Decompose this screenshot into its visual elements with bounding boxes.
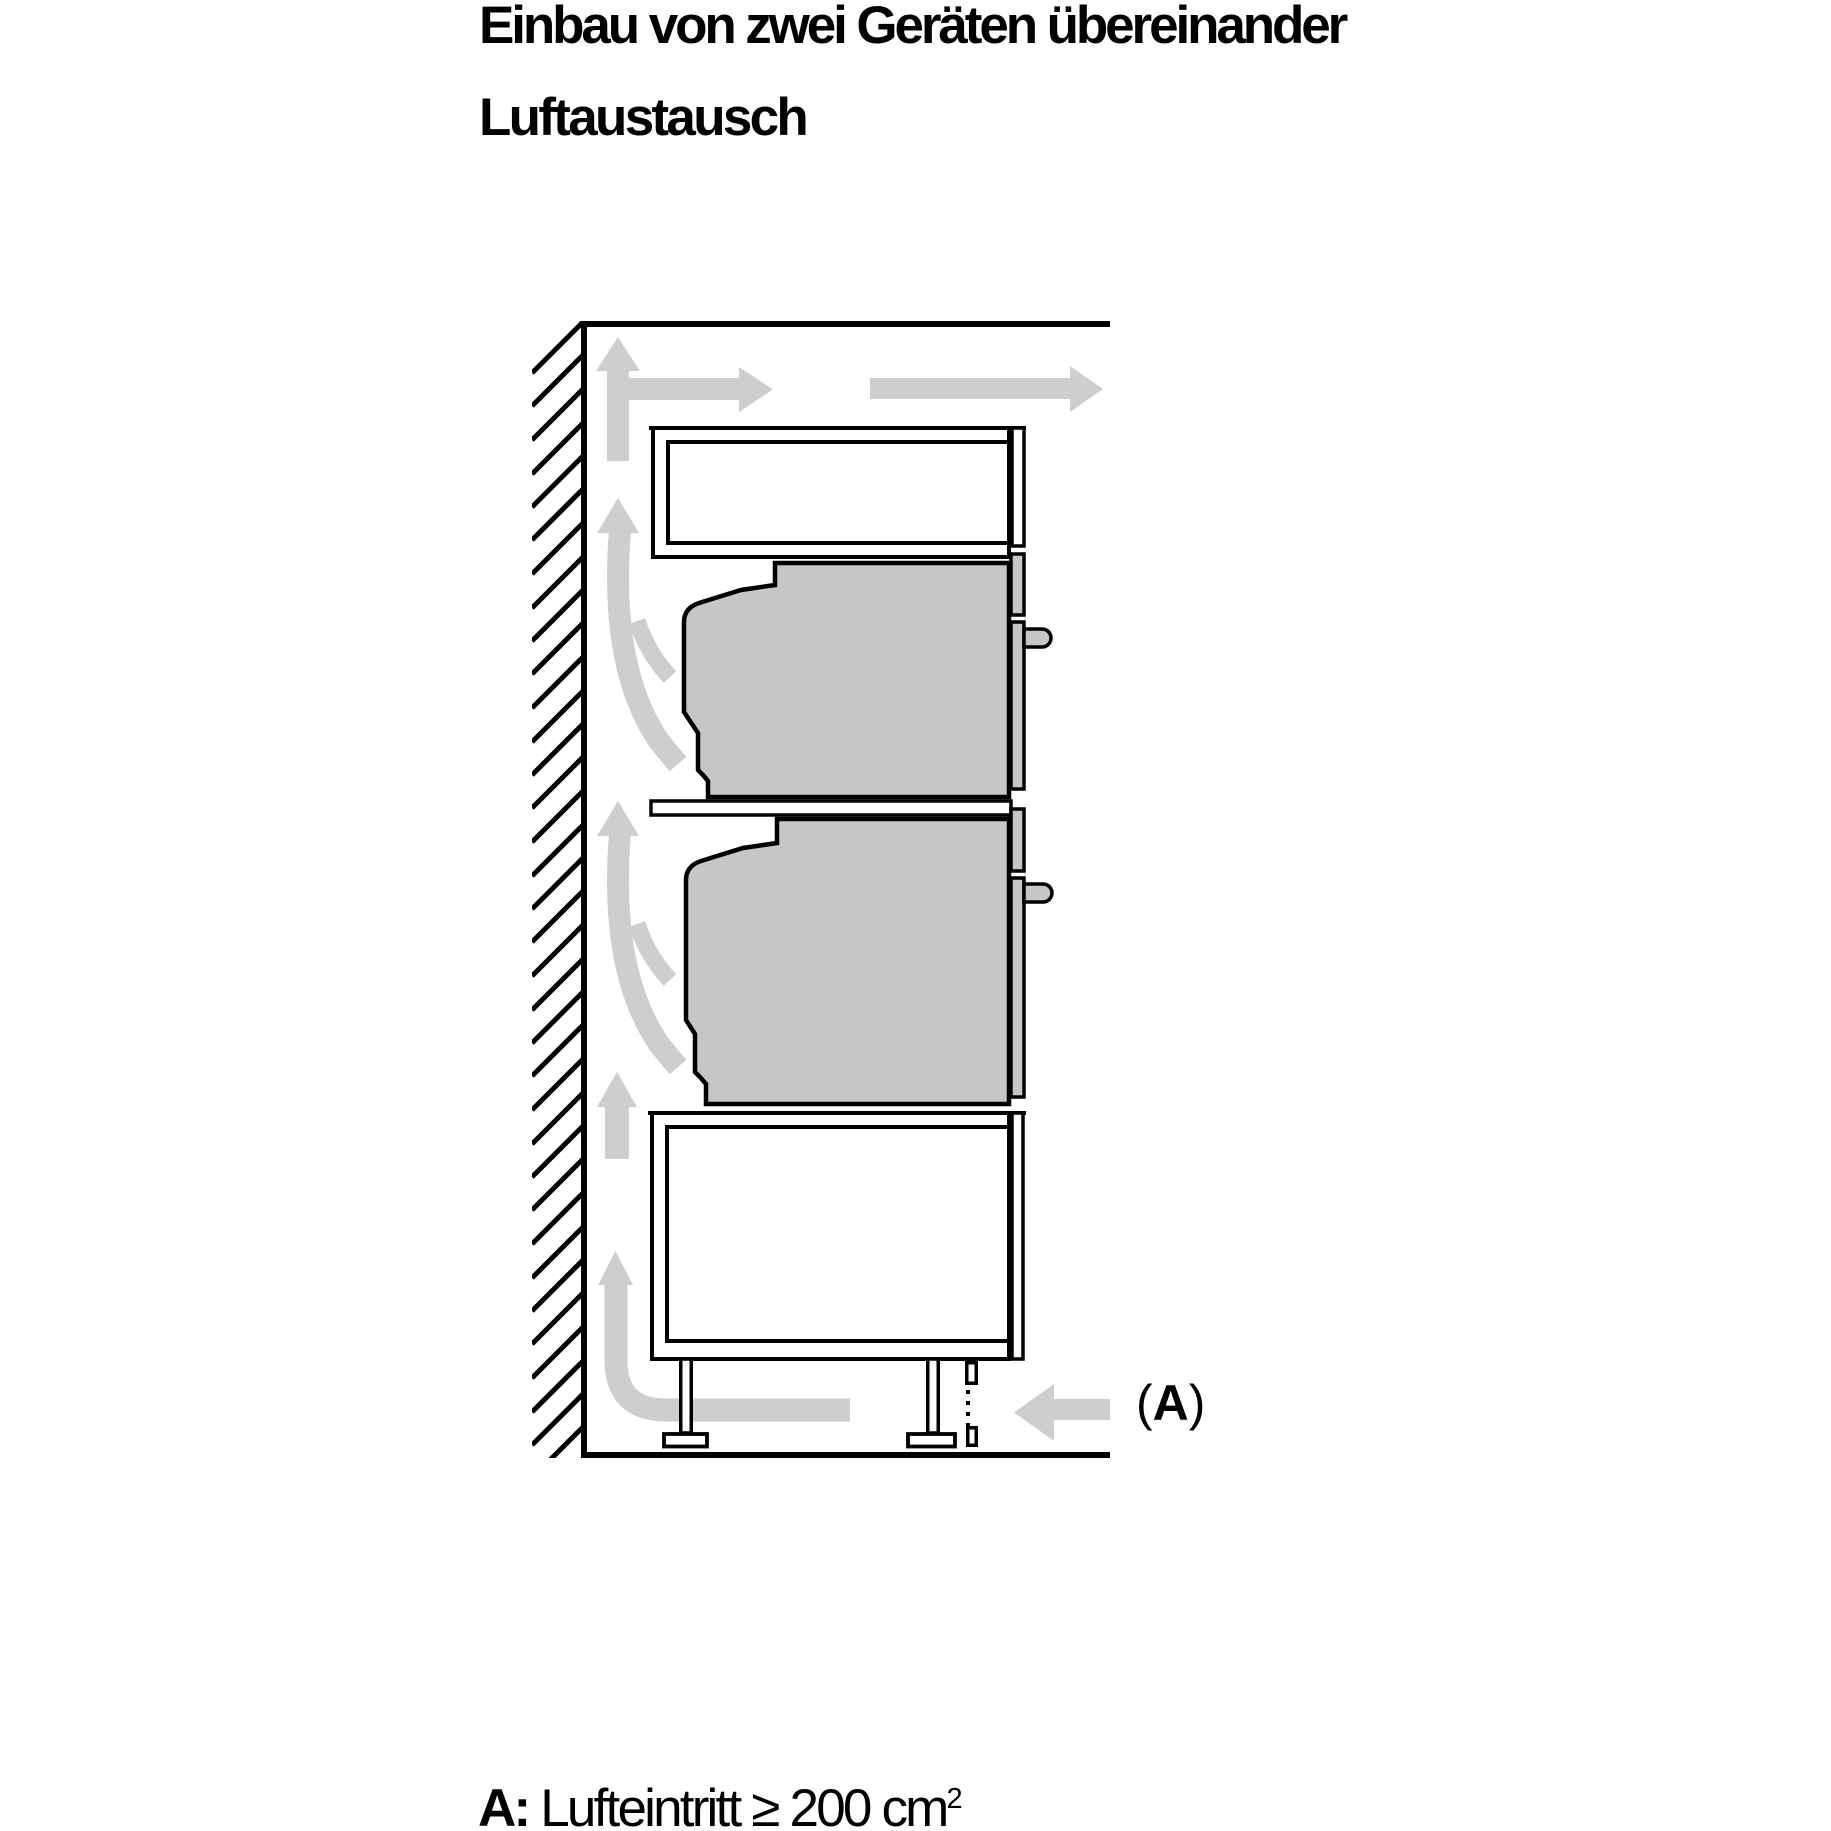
- svg-text:A: Lufteintritt ≥ 200 cm2: A: Lufteintritt ≥ 200 cm2: [478, 1779, 962, 1831]
- svg-text:(A): (A): [1136, 1375, 1205, 1431]
- svg-text:Einbau von zwei Geräten überei: Einbau von zwei Geräten übereinander: [479, 0, 1348, 55]
- svg-text:Luftaustausch: Luftaustausch: [479, 88, 806, 147]
